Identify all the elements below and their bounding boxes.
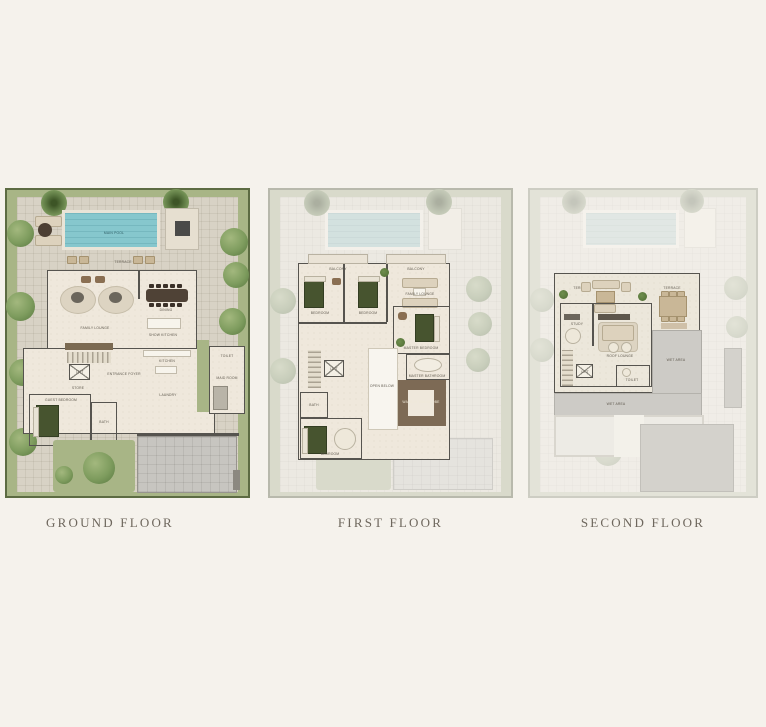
terrace-chair [145,256,155,264]
kitchen-island [155,366,177,374]
dining-chair [661,291,669,297]
laundry-label: LAUNDRY [159,393,176,396]
pot-tree-icon [38,223,52,237]
terrace-chair [79,256,89,264]
bed-pillow [304,276,326,282]
tree-icon [270,288,296,314]
sofa-shape [71,292,84,303]
round-chair [565,328,581,344]
wall [343,264,345,322]
bath-label: BATH [99,420,108,423]
maid-bed [213,386,228,410]
tree-icon [468,312,492,336]
dining-chair [163,303,168,307]
family-lounge-label: FAMILY LOUNGE [81,326,110,329]
floor-plan-ground: MAIN POOL TERRACE FAMILY LOUNGE DINING S… [5,188,250,498]
tv-unit [598,314,630,320]
pouf [621,342,632,353]
kitchen-counter [143,350,191,357]
staircase [562,350,573,386]
show-kitchen-label: SHOW KITCHEN [149,333,177,336]
outdoor-chair [581,282,591,292]
pool-outline [325,210,423,250]
tree-icon [223,262,249,288]
wet-area-right [652,330,702,395]
tree-icon [219,308,246,335]
driveway [137,436,237,493]
tree-icon [7,220,34,247]
kitchen-label: KITCHEN [159,359,175,362]
dining-chair [170,284,175,288]
plant-icon [638,292,647,301]
armchair [332,278,341,285]
outdoor-mat [661,323,687,329]
dining-chair [149,303,154,307]
outdoor-dining-table [659,296,687,317]
tree-icon [220,228,248,256]
bed-headboard [33,407,39,437]
tree-icon [55,466,73,484]
lift-label: LIFT [76,370,84,373]
pool-outline [583,210,679,248]
wet-area-bottom [554,393,702,417]
outdoor-chair [621,282,631,292]
dining-chair [177,284,182,288]
pouf [608,342,619,353]
lift-label: LIFT [581,370,589,373]
bedroom-label: BEDROOM [359,311,378,314]
staircase [308,350,321,388]
wall [592,304,594,346]
tree-icon [83,452,115,484]
pump-equipment [175,221,190,236]
floor-plan-second: TERRACE TERRACE STUDY ROOF LOUNGE LIFT T… [528,188,758,498]
bathtub [414,358,442,372]
bed [358,278,378,308]
balcony [386,254,446,264]
bed-pillow [358,276,380,282]
dining-table [146,289,188,302]
balcony [308,254,368,264]
tree-icon [530,288,554,312]
pool-pump-room [428,208,462,250]
walk-in-wardrobe-label: WALK-IN WARDROBE [402,400,439,403]
family-lounge-label: FAMILY LOUNGE [406,292,435,295]
dining-chair [177,303,182,307]
floor-plan-first: BALCONY BALCONY BEDROOM BEDROOM FAMILY L… [268,188,513,498]
terrace-chair [67,256,77,264]
tree-icon [270,358,296,384]
caption-ground-floor: GROUND FLOOR [5,515,215,531]
main-pool: MAIN POOL [62,210,160,250]
dining-chair [669,291,677,297]
terrace-chair [133,256,143,264]
master-bathroom-label: MASTER BATHROOM [409,374,446,377]
bedroom-label: BEDROOM [311,311,330,314]
terrace-label: TERRACE [663,286,680,289]
tree-icon [726,316,748,338]
open-below-void [368,348,398,430]
dining-chair [661,316,669,322]
outdoor-sofa [592,280,620,289]
dining-chair [163,284,168,288]
wc-fixture [622,368,631,377]
wardrobe-strip [65,343,113,350]
caption-first-floor: FIRST FLOOR [268,515,513,531]
toilet-label: TOILET [626,378,639,381]
palm-tree-icon [562,190,586,214]
bedroom-label: BEDROOM [321,452,340,455]
study-desk [564,314,580,320]
entrance-foyer-label: ENTRANCE FOYER [107,372,140,375]
bed [415,314,434,342]
toilet-room [616,365,650,387]
tree-icon [724,276,748,300]
bath-label: BATH [309,403,318,406]
palm-tree-icon [304,190,330,216]
sofa-shape [109,292,122,303]
roof-terrace-gray [640,424,734,492]
roof-lounge-label: ROOF LOUNGE [607,354,634,357]
side-garden-strip [197,340,209,412]
tree-icon [466,348,490,372]
bed-headboard [302,428,308,454]
store-label: STORE [72,386,84,389]
plant-icon [380,268,389,277]
guest-bedroom-label: GUEST BEDROOM [45,398,77,401]
dining-label: DINING [160,308,173,311]
bed-headboard [434,316,440,342]
staircase [67,352,111,363]
palm-tree-icon [680,189,704,213]
tree-icon [6,292,35,321]
armchair [398,312,407,320]
open-below-label: OPEN BELOW [370,384,394,387]
bed [304,278,324,308]
entry-gate [233,470,240,490]
pool-pump-room [684,208,716,248]
maid-room-label: MAID ROOM [216,376,237,379]
tree-icon [466,276,492,302]
wet-area-label: WET AREA [607,402,626,405]
terrace-label: TERRACE [114,260,131,263]
kitchen-island [147,318,181,329]
study-label: STUDY [571,322,583,325]
sofa-shape [402,278,438,288]
armchair [81,276,91,283]
armchair [95,276,105,283]
dining-chair [149,284,154,288]
lift-label: LIFT [330,367,338,370]
plant-icon [559,290,568,299]
roof-strip-right [724,348,742,408]
palm-tree-icon [426,189,452,215]
dining-chair [170,303,175,307]
dining-chair [669,316,677,322]
wall [138,271,140,299]
caption-second-floor: SECOND FLOOR [528,515,758,531]
dining-chair [156,284,161,288]
dining-chair [156,303,161,307]
outdoor-table [596,291,615,303]
dining-chair [677,291,685,297]
master-bedroom-label: MASTER BEDROOM [404,346,439,349]
sun-lounger [35,235,62,246]
bed [36,405,59,437]
wet-area-label: WET AREA [667,358,686,361]
toilet-label: TOILET [221,354,234,357]
balcony-label: BALCONY [407,267,424,270]
pool-label: MAIN POOL [104,231,124,234]
wall [299,322,387,324]
tree-icon [530,338,554,362]
round-chair [334,428,356,450]
sofa-shape [602,325,634,341]
dining-chair [677,316,685,322]
